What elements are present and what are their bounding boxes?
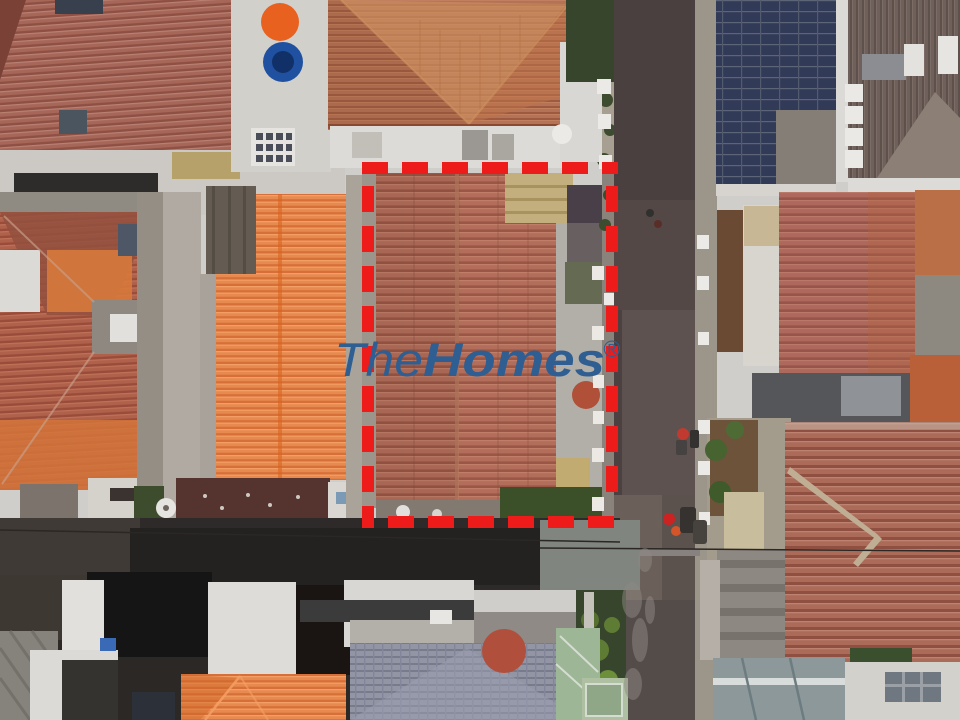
svg-text:®: ® xyxy=(603,336,620,362)
svg-text:The: The xyxy=(334,333,423,386)
svg-text:Homes: Homes xyxy=(423,333,605,386)
